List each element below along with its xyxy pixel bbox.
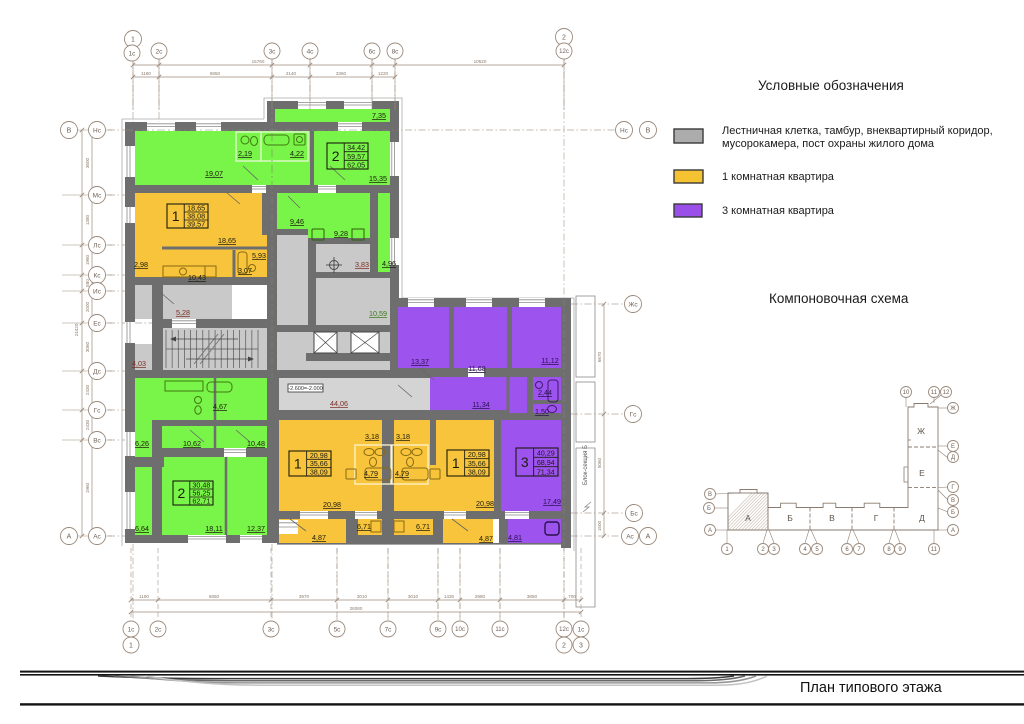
svg-text:Ес: Ес: [93, 320, 101, 327]
svg-text:38,09: 38,09: [310, 468, 328, 477]
svg-text:1190: 1190: [141, 71, 151, 76]
svg-text:4,67: 4,67: [213, 402, 227, 411]
svg-text:18,65: 18,65: [218, 236, 236, 245]
svg-text:2,98: 2,98: [134, 260, 148, 269]
svg-text:1: 1: [131, 37, 135, 44]
svg-text:71,34: 71,34: [537, 467, 555, 476]
svg-text:2,19: 2,19: [238, 149, 252, 158]
svg-text:Бс: Бс: [630, 510, 638, 517]
svg-text:2: 2: [178, 485, 186, 501]
svg-text:9,46: 9,46: [290, 217, 304, 226]
svg-text:17,49: 17,49: [543, 497, 561, 506]
svg-text:1960: 1960: [85, 482, 90, 493]
svg-text:10,48: 10,48: [247, 439, 265, 448]
svg-text:Е: Е: [919, 468, 925, 478]
svg-text:6,64: 6,64: [135, 524, 149, 533]
svg-text:68,94: 68,94: [537, 458, 555, 467]
svg-text:8с: 8с: [392, 48, 400, 55]
svg-text:В: В: [829, 513, 835, 523]
svg-text:3600: 3600: [85, 157, 90, 168]
svg-text:15,35: 15,35: [369, 174, 387, 183]
svg-text:20,98: 20,98: [468, 450, 486, 459]
svg-text:Ас: Ас: [626, 533, 634, 540]
svg-text:2000: 2000: [85, 301, 90, 312]
svg-text:Условные обозначения: Условные обозначения: [758, 78, 904, 93]
svg-text:Б: Б: [787, 513, 793, 523]
svg-text:В: В: [708, 492, 712, 498]
svg-text:2: 2: [562, 35, 566, 42]
svg-text:3 комнатная квартира: 3 комнатная квартира: [722, 205, 835, 217]
svg-text:А: А: [951, 528, 955, 534]
svg-text:мусорокамера, пост охраны жило: мусорокамера, пост охраны жилого дома: [722, 138, 935, 150]
svg-text:-2.600=-2.000: -2.600=-2.000: [288, 386, 322, 392]
svg-text:10с: 10с: [455, 627, 465, 633]
svg-text:4,22: 4,22: [290, 149, 304, 158]
svg-text:А: А: [67, 534, 72, 541]
svg-text:2: 2: [332, 148, 340, 164]
svg-text:1: 1: [452, 455, 460, 471]
svg-text:В: В: [67, 128, 72, 135]
svg-text:62,05: 62,05: [347, 160, 365, 169]
svg-text:2с: 2с: [156, 48, 164, 55]
svg-text:4,79: 4,79: [395, 469, 409, 478]
svg-text:1 комнатная квартира: 1 комнатная квартира: [722, 171, 835, 183]
svg-text:11с: 11с: [495, 627, 504, 633]
svg-text:3,83: 3,83: [355, 260, 369, 269]
svg-text:Ж: Ж: [917, 426, 925, 436]
svg-text:Ж: Ж: [950, 406, 956, 412]
svg-text:4,81: 4,81: [508, 533, 522, 542]
svg-text:План типового этажа: План типового этажа: [800, 680, 943, 696]
svg-text:5,93: 5,93: [252, 251, 266, 260]
svg-text:В: В: [646, 128, 651, 135]
svg-text:20,98: 20,98: [323, 500, 341, 509]
svg-text:4,79: 4,79: [364, 469, 378, 478]
svg-text:1960: 1960: [85, 254, 90, 265]
svg-text:40,29: 40,29: [537, 449, 555, 458]
svg-text:24420: 24420: [74, 323, 79, 336]
svg-text:12с: 12с: [559, 627, 569, 633]
svg-text:4с: 4с: [307, 48, 315, 55]
svg-text:Б: Б: [707, 506, 711, 512]
svg-text:3,07: 3,07: [238, 266, 252, 275]
svg-text:Кс: Кс: [93, 272, 101, 279]
svg-text:Ас: Ас: [93, 533, 101, 540]
svg-text:Гс: Гс: [630, 411, 638, 418]
svg-text:3,18: 3,18: [365, 432, 379, 441]
svg-text:1с: 1с: [129, 50, 137, 57]
svg-text:3360: 3360: [336, 71, 347, 76]
svg-text:В: В: [951, 498, 955, 504]
svg-text:3,18: 3,18: [396, 432, 410, 441]
svg-text:11,34: 11,34: [472, 400, 489, 409]
svg-text:3010: 3010: [408, 594, 419, 599]
svg-text:1430: 1430: [444, 594, 455, 599]
svg-text:1: 1: [172, 208, 180, 224]
svg-text:59,57: 59,57: [347, 152, 365, 161]
svg-text:10,62: 10,62: [183, 439, 201, 448]
svg-text:Блок-секция Б: Блок-секция Б: [583, 445, 589, 485]
svg-text:10520: 10520: [474, 59, 487, 64]
svg-text:А: А: [646, 534, 651, 541]
svg-text:6,26: 6,26: [135, 439, 149, 448]
svg-text:4,87: 4,87: [312, 533, 326, 542]
svg-text:3с: 3с: [269, 48, 277, 55]
svg-text:9с: 9с: [435, 626, 443, 633]
svg-text:4,03: 4,03: [132, 359, 146, 368]
svg-text:11: 11: [931, 390, 938, 396]
svg-text:12,37: 12,37: [247, 524, 265, 533]
svg-text:10,43: 10,43: [188, 273, 206, 282]
svg-text:19,07: 19,07: [205, 169, 223, 178]
svg-text:5,28: 5,28: [176, 308, 190, 317]
svg-text:Б: Б: [951, 510, 955, 516]
svg-text:3: 3: [579, 643, 583, 650]
svg-text:1500: 1500: [597, 520, 602, 531]
svg-text:15760: 15760: [252, 59, 265, 64]
svg-text:2430: 2430: [85, 384, 90, 395]
svg-text:20,98: 20,98: [476, 499, 494, 508]
svg-text:2430: 2430: [85, 419, 90, 430]
svg-text:1190: 1190: [139, 594, 149, 599]
svg-text:12: 12: [943, 390, 950, 396]
svg-text:Нс: Нс: [93, 127, 102, 134]
svg-text:700: 700: [568, 594, 576, 599]
svg-text:38,09: 38,09: [468, 467, 486, 476]
svg-text:4,87: 4,87: [479, 534, 493, 543]
svg-text:Нс: Нс: [620, 127, 629, 134]
svg-text:Компоновочная схема: Компоновочная схема: [769, 291, 909, 306]
svg-text:3010: 3010: [357, 594, 368, 599]
svg-text:9,28: 9,28: [334, 229, 348, 238]
svg-text:3970: 3970: [299, 594, 310, 599]
svg-text:Мс: Мс: [93, 192, 102, 199]
svg-text:11,68: 11,68: [468, 364, 485, 373]
svg-text:11: 11: [931, 547, 938, 553]
svg-text:7,35: 7,35: [372, 111, 386, 120]
svg-text:12с: 12с: [559, 49, 569, 55]
svg-text:39,57: 39,57: [187, 220, 205, 229]
svg-text:1220: 1220: [378, 71, 389, 76]
svg-text:3с: 3с: [268, 626, 276, 633]
svg-text:62,71: 62,71: [192, 497, 210, 506]
svg-text:6670: 6670: [597, 351, 602, 362]
svg-text:Дс: Дс: [93, 368, 101, 375]
svg-text:5с: 5с: [334, 626, 342, 633]
svg-text:7с: 7с: [385, 626, 393, 633]
svg-text:А: А: [745, 513, 751, 523]
svg-text:44,06: 44,06: [330, 399, 348, 408]
svg-text:А: А: [708, 528, 712, 534]
svg-text:Ис: Ис: [93, 288, 102, 295]
svg-text:1,50: 1,50: [535, 407, 549, 416]
svg-text:Лестничная клетка, тамбур, вне: Лестничная клетка, тамбур, внеквартирный…: [722, 125, 993, 137]
svg-text:Вс: Вс: [93, 437, 101, 444]
svg-text:3060: 3060: [85, 341, 90, 352]
svg-text:2: 2: [562, 643, 566, 650]
svg-text:2140: 2140: [286, 71, 297, 76]
svg-text:34,42: 34,42: [347, 143, 365, 152]
svg-text:18,11: 18,11: [205, 524, 222, 533]
svg-text:6,71: 6,71: [357, 522, 371, 531]
svg-text:6,71: 6,71: [416, 522, 430, 531]
svg-text:1: 1: [294, 456, 302, 472]
svg-text:11,12: 11,12: [541, 356, 558, 365]
svg-text:Д: Д: [951, 455, 955, 461]
svg-text:2с: 2с: [155, 626, 163, 633]
svg-text:1380: 1380: [85, 214, 90, 225]
svg-text:Г: Г: [874, 513, 879, 523]
svg-text:1с: 1с: [578, 626, 586, 633]
svg-text:1: 1: [129, 643, 133, 650]
svg-text:880: 880: [85, 279, 90, 287]
svg-text:Д: Д: [919, 513, 925, 523]
svg-text:26080: 26080: [350, 606, 363, 611]
svg-text:13,37: 13,37: [411, 357, 429, 366]
svg-text:1с: 1с: [128, 626, 136, 633]
svg-text:10,59: 10,59: [369, 309, 387, 318]
svg-text:2,44: 2,44: [538, 388, 552, 397]
svg-text:Жс: Жс: [628, 301, 638, 308]
svg-text:10: 10: [903, 390, 910, 396]
svg-text:5060: 5060: [597, 457, 602, 468]
svg-text:Е: Е: [951, 444, 955, 450]
svg-text:4,96: 4,96: [382, 259, 396, 268]
svg-text:Гс: Гс: [94, 407, 102, 414]
svg-text:2980: 2980: [475, 594, 486, 599]
svg-text:35,66: 35,66: [468, 459, 486, 468]
svg-text:6с: 6с: [369, 48, 377, 55]
svg-text:6850: 6850: [210, 71, 221, 76]
svg-text:Лс: Лс: [93, 242, 101, 249]
svg-text:3850: 3850: [527, 594, 538, 599]
svg-text:6850: 6850: [209, 594, 220, 599]
svg-text:3: 3: [521, 454, 529, 470]
